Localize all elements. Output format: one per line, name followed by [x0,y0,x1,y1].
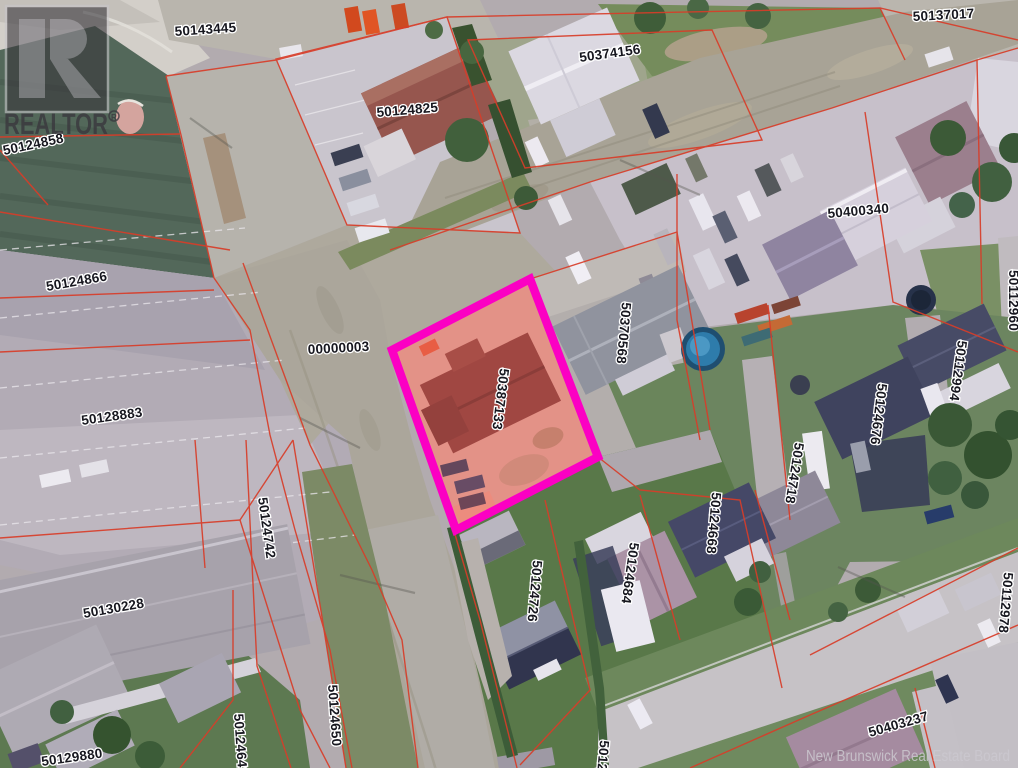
svg-text:New Brunswick Real Estate Boar: New Brunswick Real Estate Board [806,748,1010,765]
svg-text:50112960: 50112960 [1006,270,1018,331]
svg-text:REALTOR: REALTOR [4,108,108,141]
svg-text:R: R [111,113,117,122]
